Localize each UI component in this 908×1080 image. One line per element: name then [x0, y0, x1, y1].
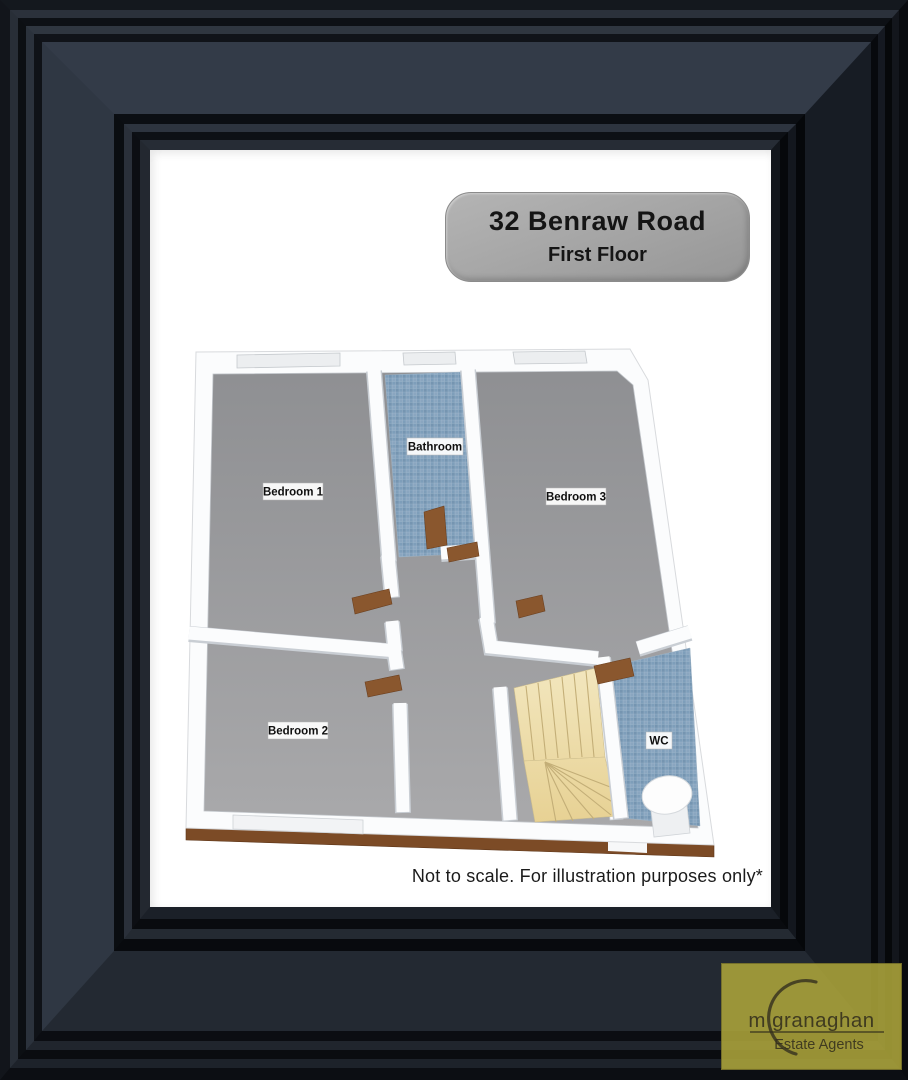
estate-agent-logo: m granaghan Estate Agents — [721, 963, 902, 1070]
disclaimer-text: Not to scale. For illustration purposes … — [412, 866, 763, 887]
photo-mat: 32 Benraw Road First Floor — [150, 150, 771, 907]
framed-floorplan-photo: 32 Benraw Road First Floor — [0, 0, 908, 1080]
bathroom-door — [424, 506, 447, 549]
label-wc: WC — [649, 736, 668, 748]
label-bedroom2: Bedroom 2 — [268, 726, 328, 738]
logo-name: m granaghan — [748, 1009, 874, 1032]
logo-graphic: m granaghan Estate Agents — [722, 964, 901, 1069]
logo-tagline: Estate Agents — [774, 1037, 863, 1053]
floorplan-drawing: Bedroom 1 Bathroom Bedroom 3 Bedroom 2 W… — [150, 150, 771, 907]
label-bedroom1: Bedroom 1 — [263, 487, 324, 499]
label-bedroom3: Bedroom 3 — [546, 492, 606, 504]
label-bathroom: Bathroom — [408, 442, 462, 454]
